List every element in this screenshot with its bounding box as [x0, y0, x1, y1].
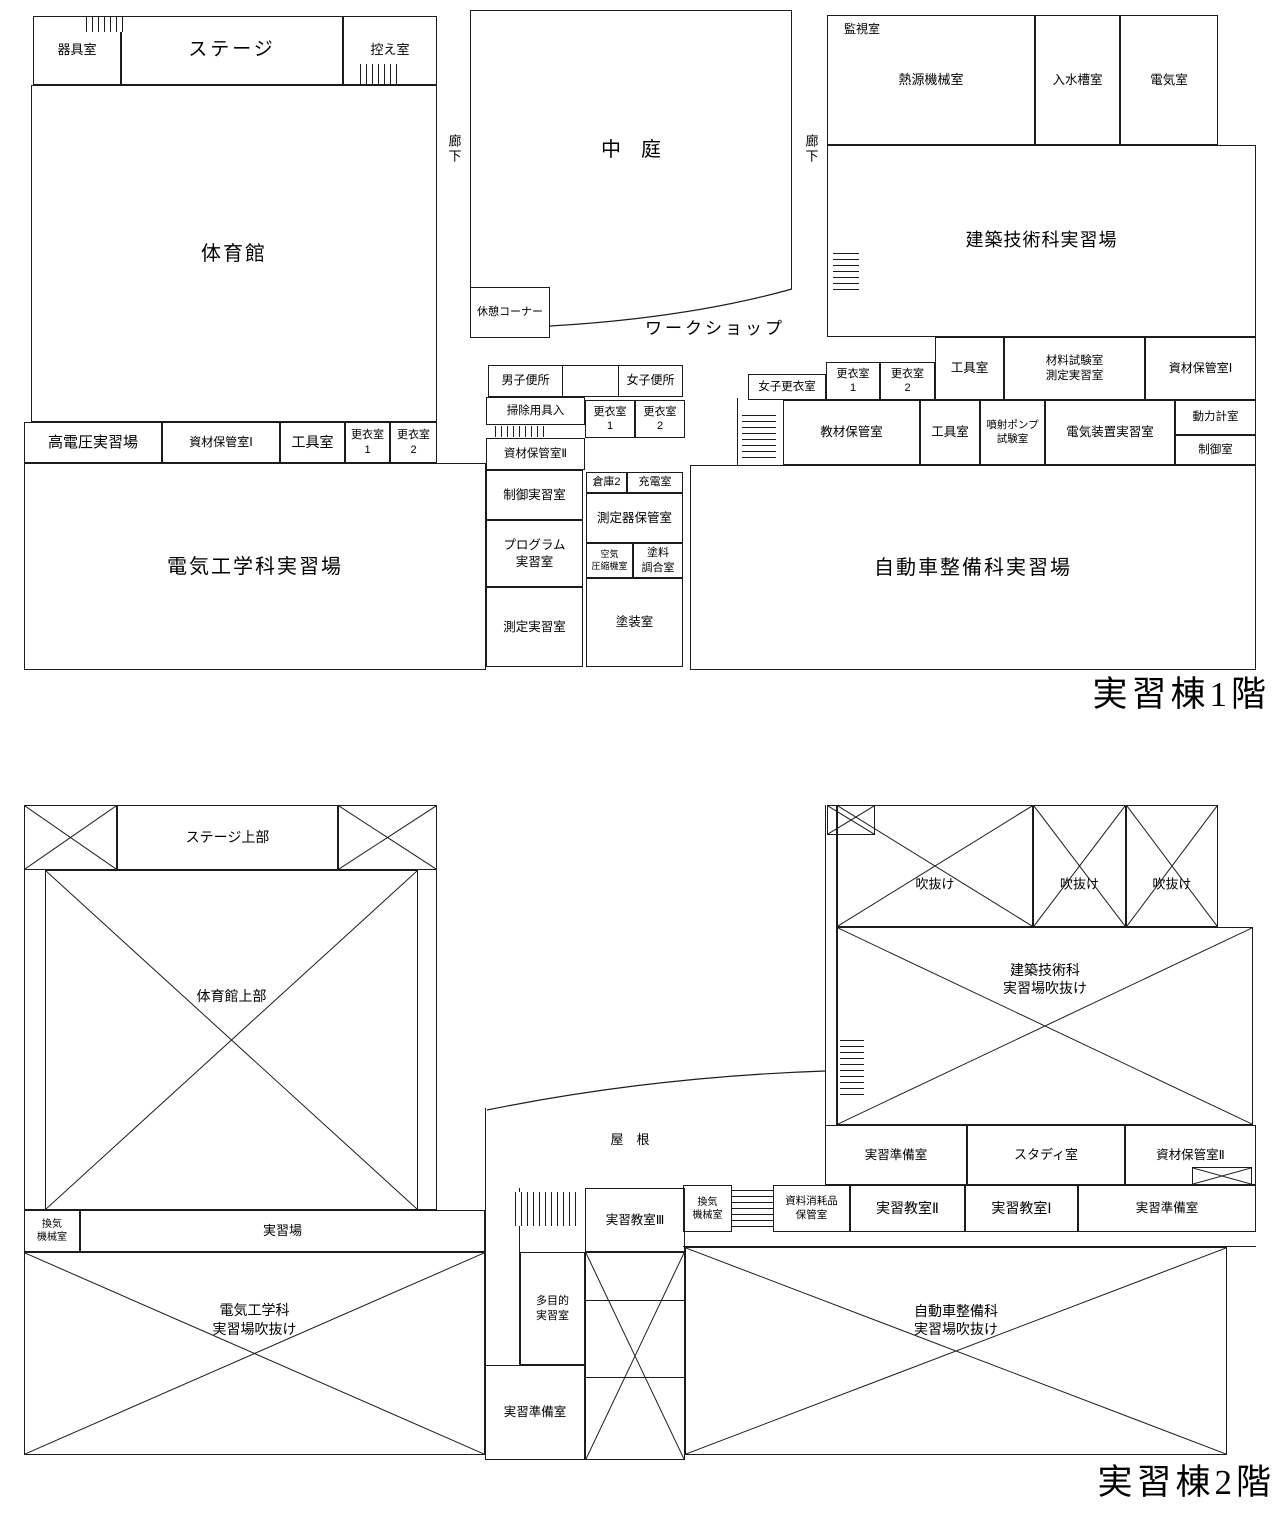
void-2-label: 吹抜け	[1034, 877, 1125, 894]
x-cross-mark	[586, 1253, 684, 1459]
water-tank-room-label: 入水槽室	[1052, 72, 1102, 88]
wall-roof-left	[485, 1108, 486, 1188]
material-storage-room-2f-label: 資材保管室Ⅱ	[1156, 1147, 1225, 1163]
training-classroom-2: 実習教室Ⅱ	[850, 1185, 965, 1232]
teaching-material-storage-label: 教材保管室	[820, 424, 883, 440]
heat-source-machinery-room-label: 熱源機械室	[898, 72, 963, 89]
x-cross-mark	[1034, 806, 1125, 926]
void-stage-right	[338, 805, 437, 870]
stairs	[732, 1190, 773, 1232]
tool-room-right-label: 工具室	[951, 360, 989, 376]
material-storage-room-1-label: 資材保管室Ⅰ	[189, 435, 253, 451]
dynamometer-room-label: 動力計室	[1193, 410, 1239, 425]
x-cross-mark	[339, 806, 436, 869]
air-compressor-room-label: 空気 圧縮機室	[591, 549, 627, 572]
roof-label: 屋 根	[560, 1125, 700, 1155]
painting-room-label: 塗装室	[616, 614, 654, 630]
training-prep-room-1-label: 実習準備室	[865, 1147, 928, 1163]
floor-2: ステージ上部体育館上部換気 機械室実習場電気工学科 実習場吹抜け吹抜け吹抜け吹抜…	[0, 0, 1280, 1514]
gymnasium-label: 体育館	[201, 241, 267, 267]
void-2: 吹抜け	[1033, 805, 1126, 927]
stairs	[495, 426, 545, 437]
stage-upper-label: ステージ上部	[186, 828, 270, 846]
x-cross-mark	[838, 928, 1252, 1124]
rest-corner-label: 休憩コーナー	[477, 305, 543, 319]
corridor-strip	[683, 1232, 1256, 1247]
changing-room-1-label: 更衣室 1	[351, 428, 384, 457]
control-training-room-label: 制御実習室	[503, 487, 566, 503]
x-cross-mark	[1193, 1168, 1251, 1184]
void-1: 吹抜け	[837, 805, 1033, 927]
mens-toilet-label: 男子便所	[501, 373, 549, 389]
changing-room-1-right-label: 更衣室 1	[837, 367, 870, 396]
program-training-room-label: プログラム 実習室	[503, 537, 565, 570]
workshop-label-label: ワークショップ	[645, 318, 785, 340]
supplies-storage-room: 資料消耗品 保管室	[773, 1185, 850, 1232]
training-prep-room-2: 実習準備室	[1078, 1185, 1256, 1232]
study-room: スタディ室	[967, 1125, 1125, 1185]
womens-changing-room-label: 女子更衣室	[758, 380, 816, 395]
training-area-label: 実習場	[263, 1223, 302, 1240]
training-prep-room-1: 実習準備室	[825, 1125, 967, 1185]
cleaning-supplies-storage-label: 掃除用具入	[507, 404, 565, 419]
charging-room-label: 充電室	[639, 475, 672, 489]
x-cross-mark	[1127, 806, 1217, 926]
paint-mixing-room-label: 塗料 調合室	[642, 546, 675, 575]
corridor-label-left-label: 廊下	[445, 134, 462, 164]
void-1-label: 吹抜け	[838, 877, 1032, 894]
stairs	[833, 253, 859, 295]
floor2-caption: 実習棟2階	[990, 1460, 1275, 1506]
stage-upper: ステージ上部	[117, 805, 338, 870]
x-cross-mark	[838, 806, 1032, 926]
changing-room-1-center-label: 更衣室 1	[594, 405, 627, 434]
multipurpose-training-room-label: 多目的 実習室	[536, 1294, 569, 1323]
x-cross-mark	[25, 1253, 484, 1454]
instrument-storage-room-label: 測定器保管室	[597, 510, 672, 526]
ventilation-machinery-room-right-label: 換気 機械室	[693, 1196, 723, 1222]
injection-pump-test-room-label: 噴射ポンプ 試験室	[986, 419, 1038, 446]
training-classroom-1: 実習教室Ⅰ	[965, 1185, 1078, 1232]
void-3: 吹抜け	[1126, 805, 1218, 927]
high-voltage-training-area-label: 高電圧実習場	[48, 433, 138, 453]
tool-room-label: 工具室	[292, 433, 334, 451]
x-cross-mark	[25, 806, 116, 869]
stairs	[515, 1192, 577, 1226]
training-prep-room-3-label: 実習準備室	[504, 1404, 567, 1420]
womens-toilet-label: 女子便所	[626, 373, 674, 389]
warehouse-2-label: 倉庫2	[592, 475, 620, 489]
floor2-caption-label: 実習棟2階	[1097, 1460, 1275, 1506]
architecture-training-void: 建築技術科 実習場吹抜け	[837, 927, 1253, 1125]
courtyard-label: 中 庭	[601, 137, 661, 163]
ventilation-machinery-room-left: 換気 機械室	[24, 1210, 80, 1252]
tool-room-auto-label: 工具室	[931, 424, 969, 440]
auto-maintenance-void: 自動車整備科 実習場吹抜け	[685, 1247, 1227, 1455]
electric-room-label: 電気室	[1150, 72, 1188, 88]
gymnasium-upper: 体育館上部	[45, 870, 418, 1210]
x-cross-mark	[686, 1248, 1226, 1454]
corridor-wall	[825, 805, 837, 1125]
changing-room-2-right-label: 更衣室 2	[891, 367, 924, 396]
electrical-equipment-training-room-label: 電気装置実習室	[1066, 424, 1154, 440]
material-storage-room-1-right-label: 資材保管室Ⅰ	[1169, 361, 1233, 377]
study-room-label: スタディ室	[1014, 1147, 1078, 1164]
multipurpose-training-room: 多目的 実習室	[520, 1252, 585, 1365]
equipment-room-label: 器具室	[57, 42, 96, 59]
material-test-room-label: 材料試験室 測定実習室	[1046, 354, 1104, 384]
void-center-strip	[585, 1252, 685, 1460]
architecture-training-area-label: 建築技術科実習場	[966, 229, 1118, 252]
training-area: 実習場	[80, 1210, 485, 1252]
stairs	[840, 1040, 864, 1098]
training-classroom-2-label: 実習教室Ⅱ	[876, 1199, 939, 1217]
ventilation-machinery-room-left-label: 換気 機械室	[37, 1218, 67, 1244]
x-cross-mark	[46, 871, 417, 1209]
training-classroom-3: 実習教室Ⅲ	[585, 1188, 685, 1252]
corridor-label-right-label: 廊下	[802, 134, 819, 164]
training-classroom-1-label: 実習教室Ⅰ	[991, 1199, 1051, 1217]
void-stage-left	[24, 805, 117, 870]
ventilation-machinery-room-right: 換気 機械室	[683, 1185, 732, 1232]
stairs	[360, 64, 398, 84]
roof-label-label: 屋 根	[610, 1132, 649, 1149]
changing-room-2-label: 更衣室 2	[397, 428, 430, 457]
floor-plan-canvas: 器具室ステージ控え室体育館高電圧実習場資材保管室Ⅰ工具室更衣室 1更衣室 2電気…	[0, 0, 1280, 1514]
supplies-storage-room-label: 資料消耗品 保管室	[785, 1195, 838, 1222]
void-3-label: 吹抜け	[1127, 877, 1217, 894]
void-small-storage	[1192, 1167, 1252, 1185]
auto-maintenance-void-label: 自動車整備科 実習場吹抜け	[686, 1302, 1226, 1338]
gymnasium-upper-label: 体育館上部	[46, 987, 417, 1005]
training-prep-room-2-label: 実習準備室	[1136, 1200, 1199, 1216]
measurement-training-room-label: 測定実習室	[503, 619, 566, 635]
stage-label: ステージ	[188, 38, 276, 63]
material-storage-room-2-label: 資材保管室Ⅱ	[504, 447, 567, 462]
floor1-caption-label: 実習棟1階	[1092, 672, 1270, 718]
training-classroom-3-label: 実習教室Ⅲ	[606, 1212, 665, 1228]
stairs	[86, 17, 124, 32]
training-prep-room-3: 実習準備室	[485, 1365, 585, 1460]
changing-room-2-center-label: 更衣室 2	[644, 405, 677, 434]
green-room-label: 控え室	[370, 42, 409, 59]
stairs	[742, 415, 776, 463]
electrical-training-void-label: 電気工学科 実習場吹抜け	[25, 1301, 484, 1337]
electrical-engineering-training-area-label: 電気工学科実習場	[167, 554, 343, 580]
control-room-label: 制御室	[1198, 443, 1233, 458]
electrical-training-void: 電気工学科 実習場吹抜け	[24, 1252, 485, 1455]
architecture-training-void-label: 建築技術科 実習場吹抜け	[838, 961, 1252, 997]
auto-maintenance-training-area-label: 自動車整備科実習場	[874, 555, 1072, 581]
monitoring-room-label-label: 監視室	[844, 22, 880, 38]
